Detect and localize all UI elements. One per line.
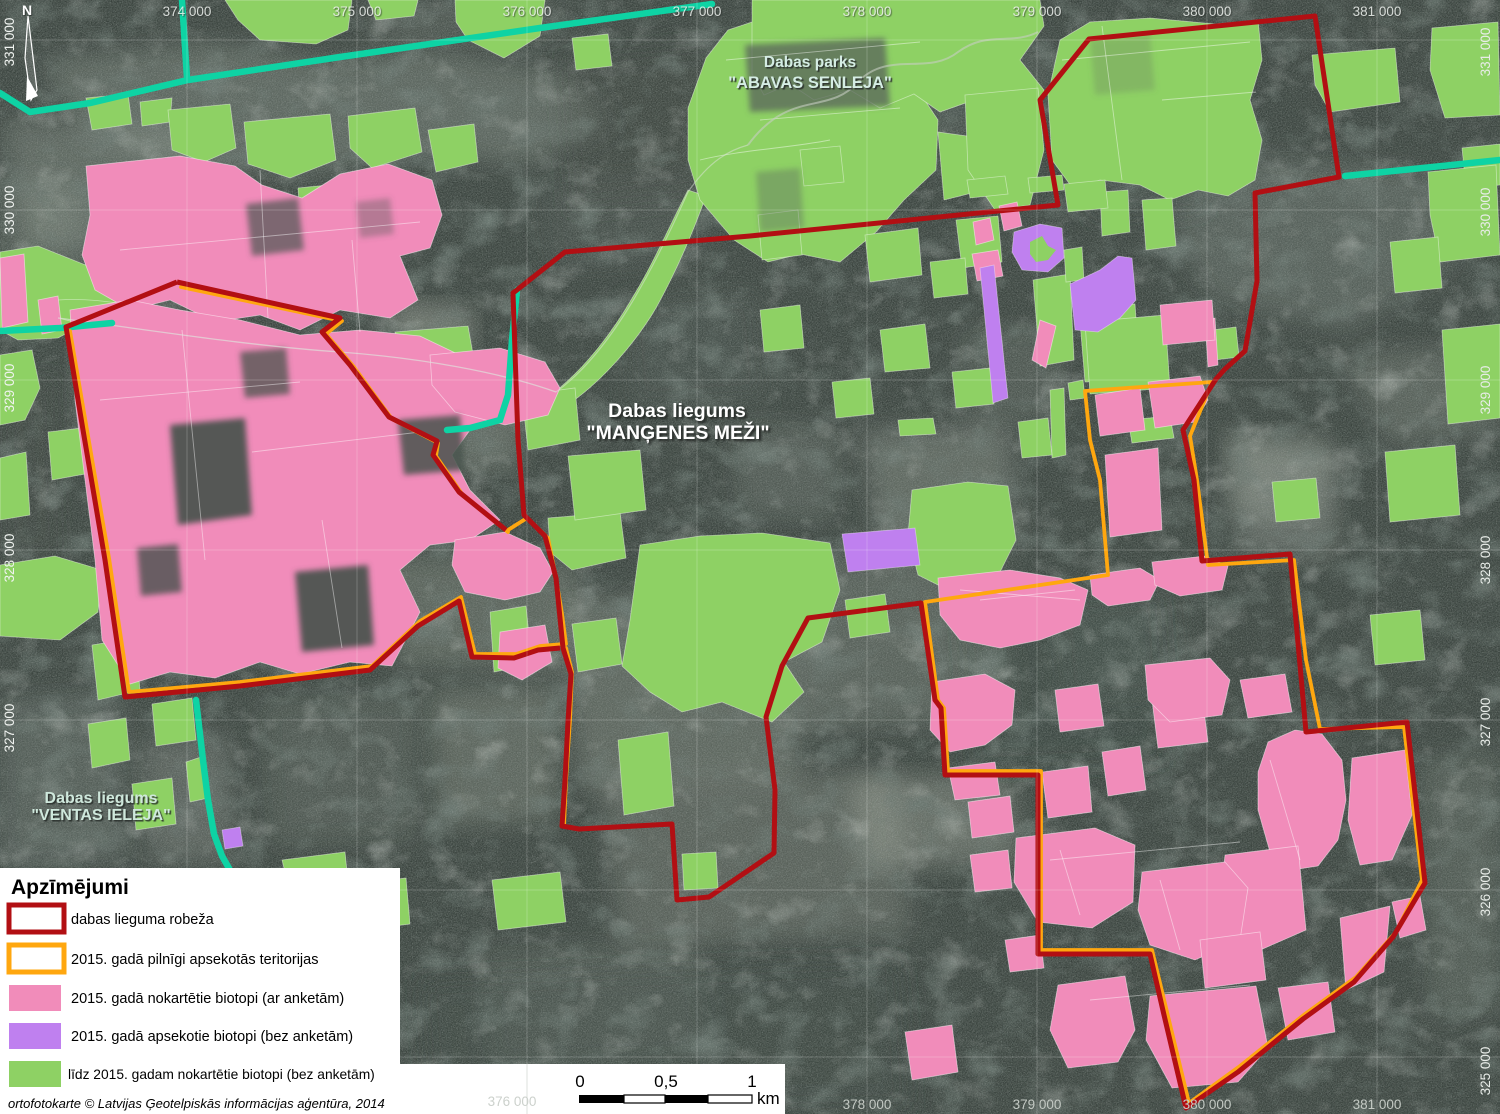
svg-text:Dabas liegums: Dabas liegums	[45, 790, 158, 807]
svg-text:381 000: 381 000	[1353, 4, 1402, 19]
svg-text:379 000: 379 000	[1013, 4, 1062, 19]
svg-text:dabas lieguma robeža: dabas lieguma robeža	[71, 912, 215, 928]
svg-text:329 000: 329 000	[2, 364, 17, 413]
svg-text:381 000: 381 000	[1353, 1097, 1402, 1112]
svg-text:0: 0	[575, 1072, 584, 1091]
svg-text:1: 1	[747, 1072, 756, 1091]
svg-text:331 000: 331 000	[1478, 28, 1493, 77]
svg-text:330 000: 330 000	[1478, 188, 1493, 237]
svg-text:Dabas parks: Dabas parks	[764, 54, 856, 71]
svg-text:"VENTAS IELEJA": "VENTAS IELEJA"	[31, 807, 170, 824]
svg-text:km: km	[757, 1089, 780, 1108]
svg-text:327 000: 327 000	[1478, 698, 1493, 747]
svg-text:325 000: 325 000	[1478, 1047, 1493, 1096]
svg-text:326 000: 326 000	[1478, 868, 1493, 917]
svg-text:380 000: 380 000	[1183, 1097, 1232, 1112]
svg-text:378 000: 378 000	[843, 1097, 892, 1112]
svg-text:329 000: 329 000	[1478, 366, 1493, 415]
svg-text:376 000: 376 000	[488, 1094, 537, 1109]
svg-text:Apzīmējumi: Apzīmējumi	[11, 876, 129, 899]
svg-text:376 000: 376 000	[503, 4, 552, 19]
svg-text:331 000: 331 000	[2, 18, 17, 67]
svg-text:374 000: 374 000	[163, 4, 212, 19]
svg-text:379 000: 379 000	[1013, 1097, 1062, 1112]
svg-text:327 000: 327 000	[2, 704, 17, 753]
svg-text:328 000: 328 000	[2, 534, 17, 583]
svg-text:2015. gadā pilnīgi apsekotās t: 2015. gadā pilnīgi apsekotās teritorijas	[71, 952, 318, 968]
svg-text:2015. gadā apsekotie biotopi (: 2015. gadā apsekotie biotopi (bez anketā…	[71, 1029, 353, 1045]
svg-text:Dabas liegums: Dabas liegums	[608, 400, 746, 422]
svg-text:380 000: 380 000	[1183, 4, 1232, 19]
svg-text:2015. gadā nokartētie biotopi: 2015. gadā nokartētie biotopi (ar anketā…	[71, 991, 344, 1007]
svg-text:378 000: 378 000	[843, 4, 892, 19]
svg-text:"MANĢENES MEŽI": "MANĢENES MEŽI"	[586, 420, 769, 444]
svg-text:377 000: 377 000	[673, 4, 722, 19]
svg-text:"ABAVAS SENLEJA": "ABAVAS SENLEJA"	[728, 74, 892, 92]
svg-text:0,5: 0,5	[654, 1072, 678, 1091]
svg-text:330 000: 330 000	[2, 186, 17, 235]
svg-text:ortofotokarte © Latvijas Ģeote: ortofotokarte © Latvijas Ģeotelpiskās in…	[8, 1096, 385, 1111]
svg-text:līdz 2015. gadam nokartētie bi: līdz 2015. gadam nokartētie biotopi (bez…	[68, 1067, 375, 1082]
svg-text:N: N	[22, 2, 32, 18]
svg-text:375 000: 375 000	[333, 4, 382, 19]
svg-text:328 000: 328 000	[1478, 536, 1493, 585]
